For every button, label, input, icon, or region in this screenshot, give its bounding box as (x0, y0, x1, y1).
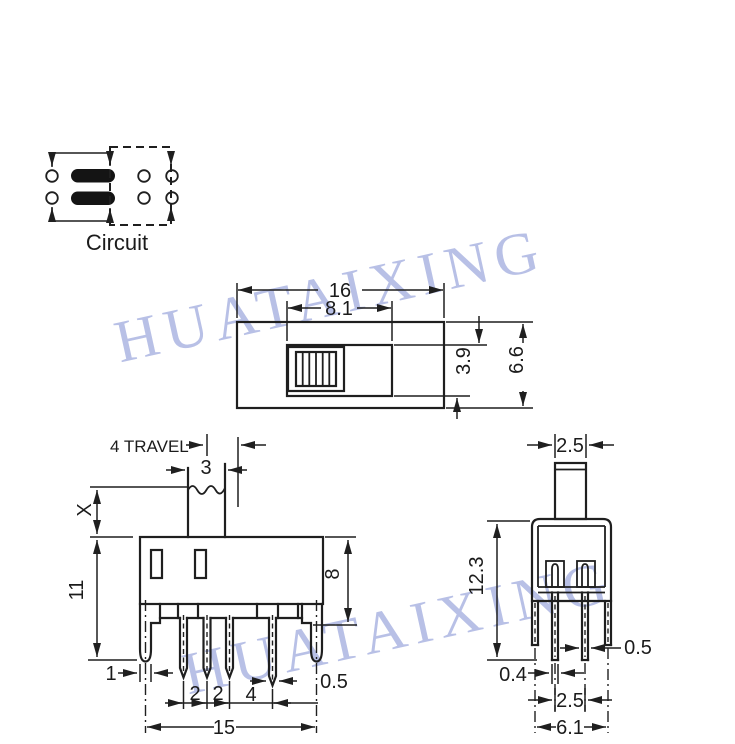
dim-top-slot-width: 8.1 (325, 298, 353, 320)
contact-dot (46, 192, 58, 204)
contact-bridge (71, 169, 115, 183)
side-view: 2.5 12.3 0.5 0.4 2.5 6. (466, 434, 652, 739)
side-legs (532, 601, 611, 645)
contact-dot (138, 192, 150, 204)
dim-knob-depth: 2.5 (556, 435, 584, 457)
side-pins (552, 593, 588, 661)
dim-pin-pitch-3: 4 (245, 684, 256, 706)
front-hole-right (195, 550, 206, 578)
dim-knob-height: X (74, 503, 96, 516)
dim-knob-width: 3 (200, 457, 211, 479)
dim-leg-width: 1 (105, 663, 116, 685)
side-knob (555, 463, 586, 519)
knob-serrations (303, 353, 330, 385)
dim-pin-pitch-2: 2 (212, 683, 223, 705)
contact-bridge (71, 192, 115, 206)
break-line (188, 486, 225, 494)
side-body (532, 519, 611, 601)
dim-terminal-height: 8 (322, 568, 344, 579)
dim-pin-pitch-1: 2 (189, 683, 200, 705)
front-body (140, 537, 323, 604)
dim-pin-span: 2.5 (556, 690, 584, 712)
solid-link-bottom (52, 207, 110, 221)
dim-side-height: 12.3 (466, 557, 488, 596)
circuit-diagram: Circuit (46, 147, 178, 255)
solid-link-top (52, 153, 110, 167)
top-view: 16 8.1 3.9 6.6 (237, 280, 533, 419)
contact-dot (138, 170, 150, 182)
dim-leg-span: 6.1 (556, 717, 584, 739)
contact-dot (46, 170, 58, 182)
front-hole-left (151, 550, 162, 578)
dim-pin-width: 0.5 (320, 671, 348, 693)
dim-side-pin-thickness: 0.5 (624, 637, 652, 659)
technical-drawing-page: HUATAIXING HUATAIXING Cir (0, 0, 735, 744)
side-contacts (546, 561, 595, 587)
dim-travel: 4 TRAVEL (110, 437, 189, 456)
front-leg-left (140, 604, 160, 662)
dashed-position-box (110, 147, 171, 225)
dim-top-overall-height: 6.6 (506, 346, 528, 374)
drawing-canvas: Circuit 16 8.1 (0, 0, 735, 744)
front-terminal-block (160, 604, 302, 618)
front-view: 4 TRAVEL 3 X 11 8 (66, 434, 357, 739)
circuit-label: Circuit (86, 230, 148, 255)
dim-body-height: 11 (66, 580, 88, 601)
front-pins (180, 618, 276, 686)
dim-leg-thickness: 0.4 (499, 664, 527, 686)
dim-top-slot-height: 3.9 (453, 347, 475, 375)
front-leg-centerlines (146, 600, 317, 733)
front-leg-right (302, 604, 322, 662)
dim-mount-span: 15 (213, 717, 235, 739)
